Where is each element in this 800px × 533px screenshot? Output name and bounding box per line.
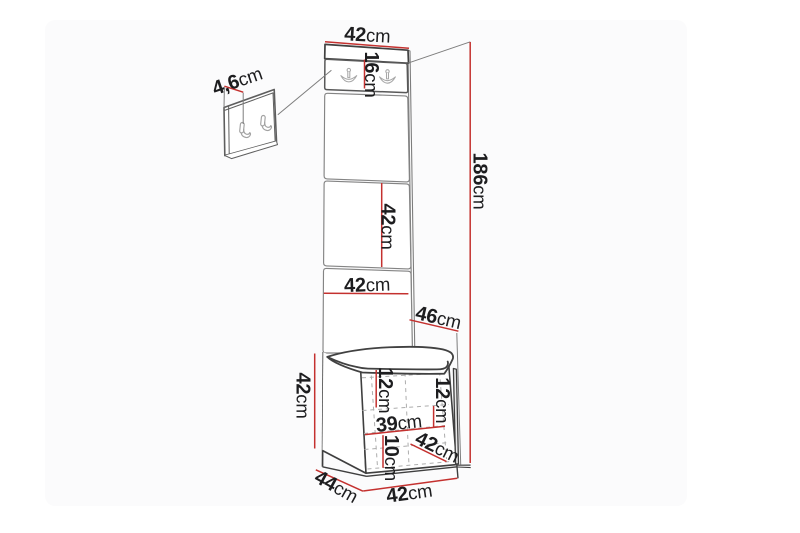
- svg-text:42cm: 42cm: [344, 274, 391, 298]
- svg-text:16cm: 16cm: [360, 51, 382, 97]
- svg-text:10cm: 10cm: [380, 435, 402, 481]
- svg-text:186cm: 186cm: [468, 152, 490, 209]
- svg-text:12cm: 12cm: [374, 367, 396, 413]
- svg-text:12cm: 12cm: [431, 377, 453, 423]
- svg-text:42cm: 42cm: [377, 203, 399, 249]
- svg-text:42cm: 42cm: [344, 23, 391, 47]
- svg-text:42cm: 42cm: [292, 372, 314, 418]
